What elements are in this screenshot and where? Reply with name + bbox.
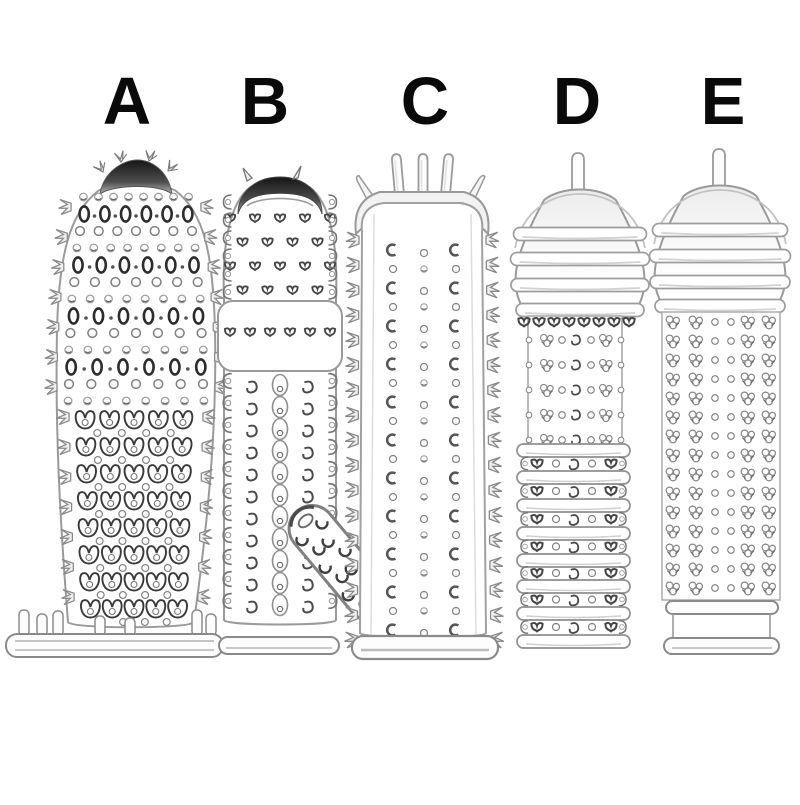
svg-text:C: C	[401, 64, 449, 139]
svg-text:A: A	[103, 64, 151, 139]
svg-text:E: E	[701, 64, 746, 139]
svg-text:D: D	[553, 64, 601, 139]
svg-text:B: B	[241, 64, 289, 139]
